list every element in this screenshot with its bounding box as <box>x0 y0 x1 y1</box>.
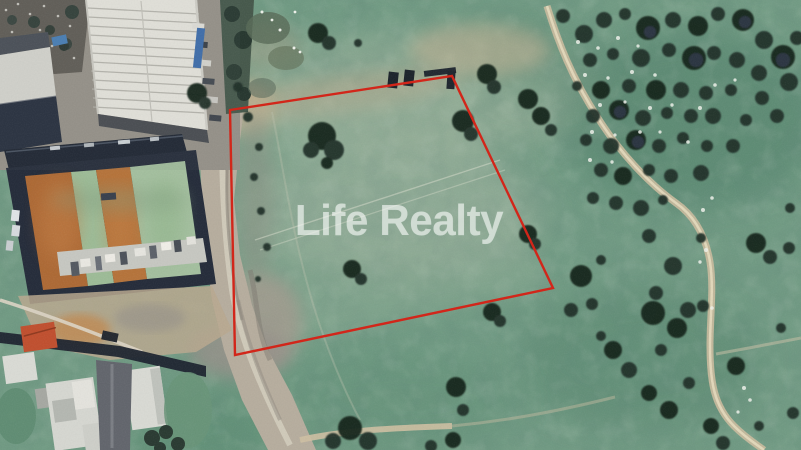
satellite-canvas <box>0 0 801 450</box>
satellite-image: Life Realty <box>0 0 801 450</box>
grain-overlay-dark <box>0 0 801 450</box>
